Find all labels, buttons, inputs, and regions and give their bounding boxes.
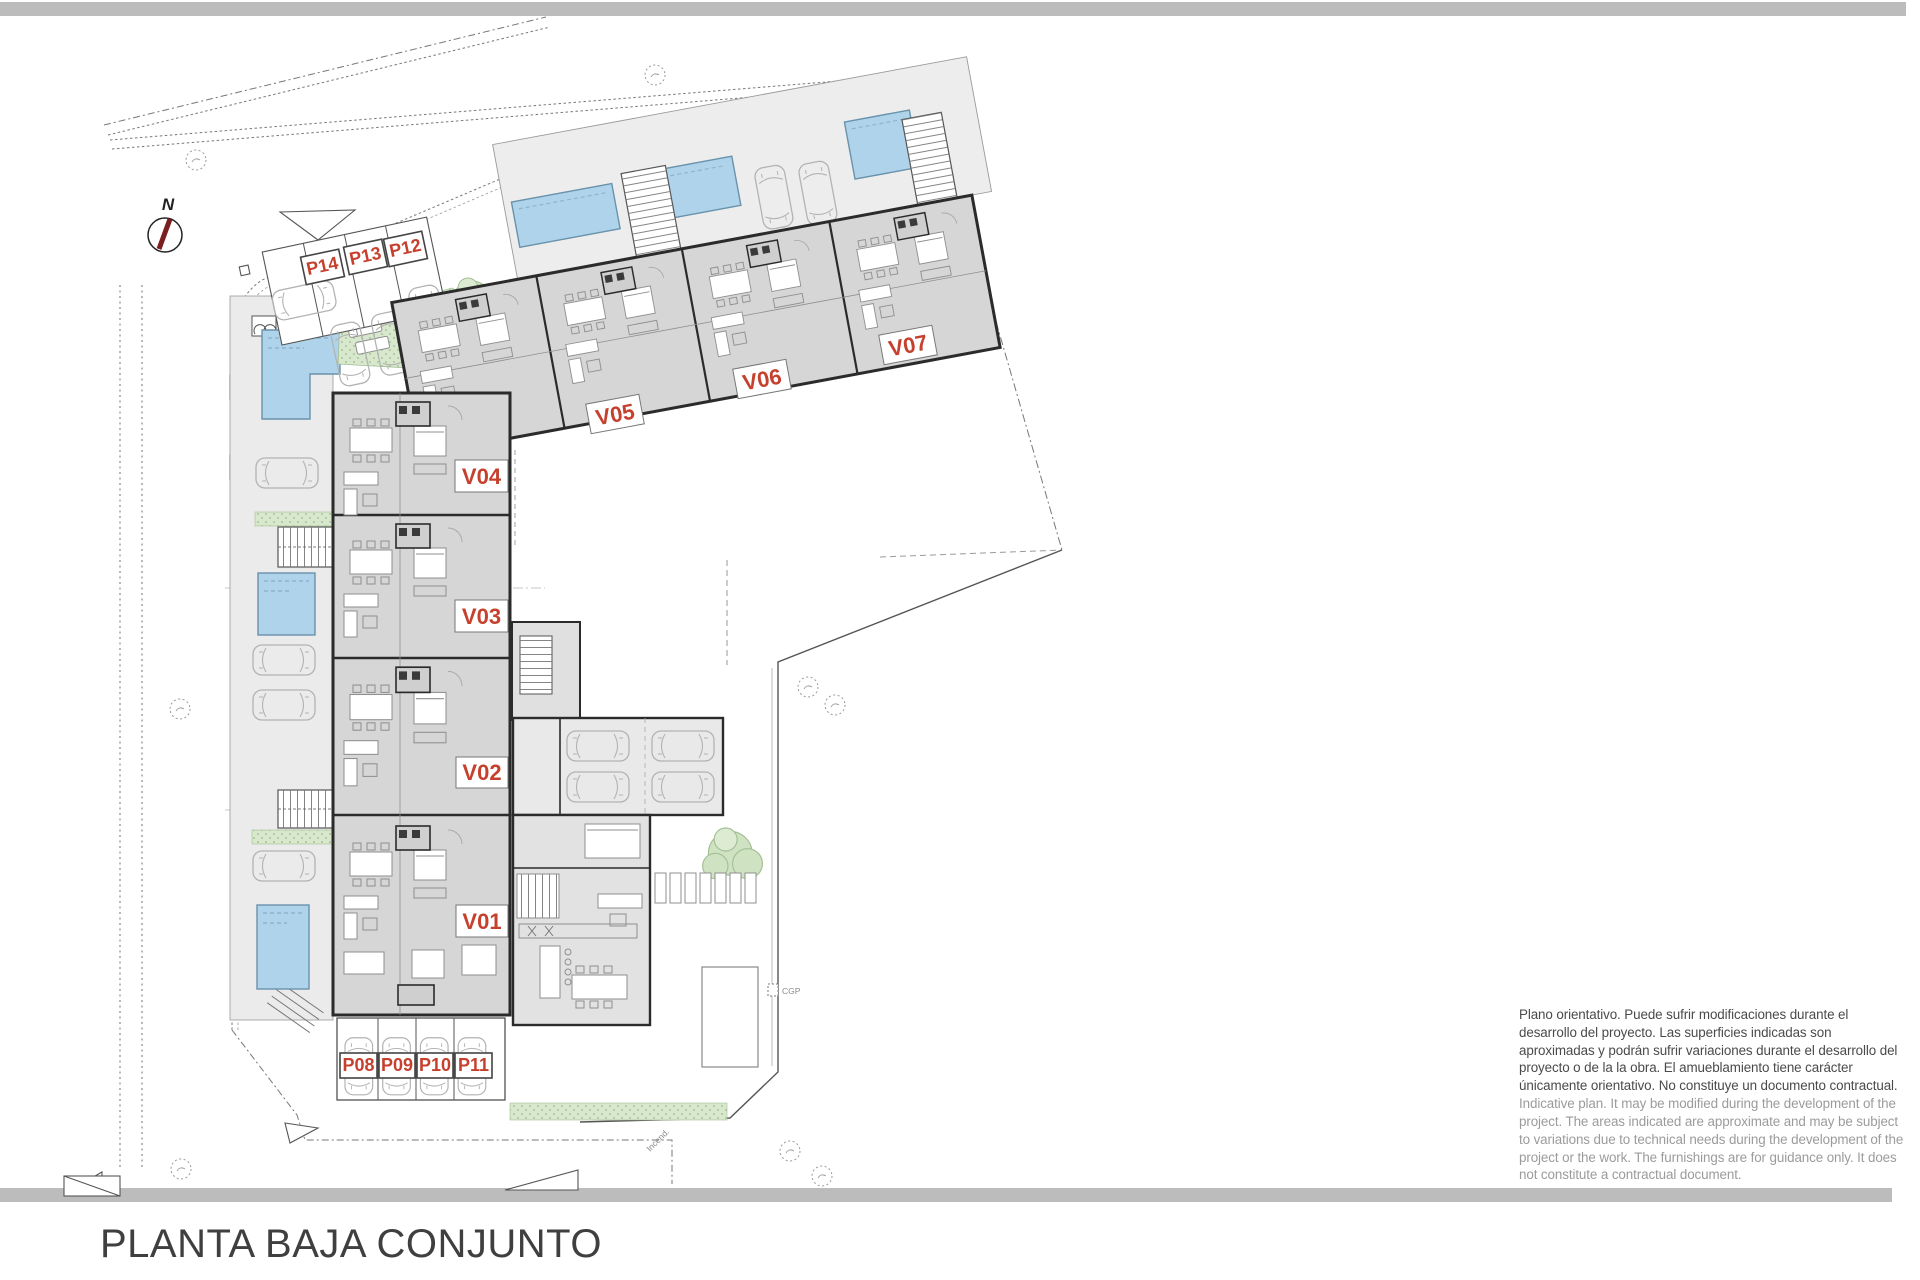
- unit-label-v01: V01: [462, 909, 501, 934]
- disclaimer-spanish: Plano orientativo. Puede sufrir modifica…: [1519, 1006, 1905, 1095]
- stairs-icon: [517, 874, 559, 918]
- common-building: CGP Incend.: [510, 622, 801, 1153]
- page-title: PLANTA BAJA CONJUNTO: [100, 1222, 602, 1267]
- parking-label-p11: P11: [458, 1055, 489, 1075]
- disclaimer-english: Indicative plan. It may be modified duri…: [1519, 1095, 1905, 1184]
- parking-label-p09: P09: [381, 1055, 413, 1075]
- cgp-marker: CGP: [768, 984, 801, 996]
- unit-label-v03: V03: [462, 604, 501, 629]
- unit-label-v02: V02: [462, 760, 501, 785]
- grass-strip: [510, 1103, 727, 1120]
- parking-label-p10: P10: [419, 1055, 451, 1075]
- plan-sheet: P14 P13 P12: [0, 0, 1920, 1280]
- north-compass-icon: N: [148, 195, 182, 252]
- disclaimer-block: Plano orientativo. Puede sufrir modifica…: [1519, 1006, 1905, 1184]
- parking-block-bottom: P08 P09 P10 P11: [337, 1018, 505, 1100]
- parking-label-p08: P08: [342, 1055, 374, 1075]
- unit-label-v04: V04: [462, 464, 502, 489]
- lawn-court: [702, 967, 758, 1067]
- pool-icon: [257, 905, 309, 989]
- tree-icon: [703, 828, 763, 879]
- cgp-label: CGP: [782, 986, 801, 996]
- pool-icon: [258, 573, 315, 635]
- stairs-icon: [520, 636, 552, 694]
- lounger-row: [655, 873, 756, 903]
- north-label: N: [162, 195, 175, 214]
